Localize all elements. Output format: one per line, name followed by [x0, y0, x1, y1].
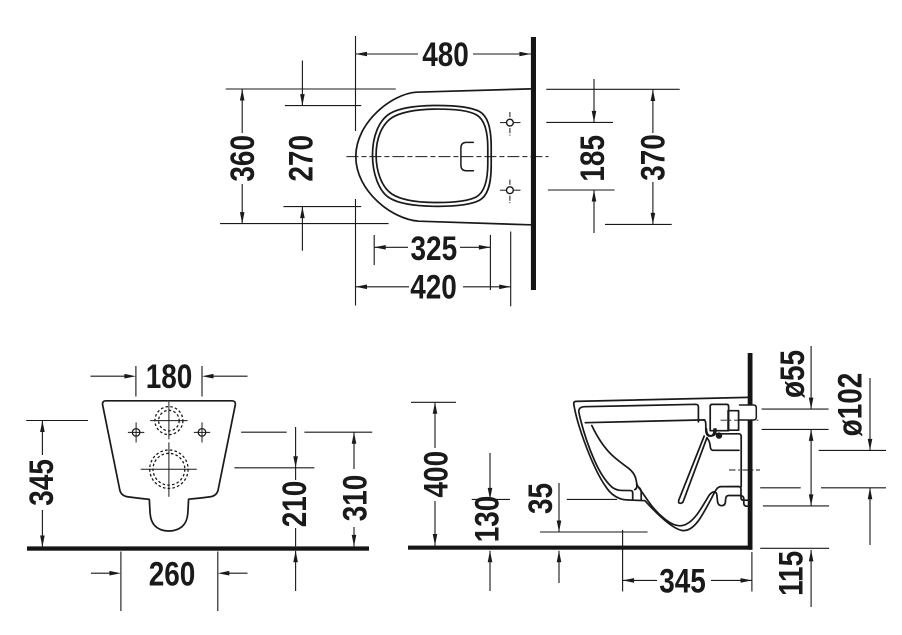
svg-text:185: 185 — [573, 135, 611, 182]
svg-text:260: 260 — [149, 555, 196, 593]
svg-text:ø55: ø55 — [773, 350, 811, 398]
svg-text:345: 345 — [22, 459, 60, 506]
svg-text:35: 35 — [521, 483, 559, 514]
svg-text:480: 480 — [422, 35, 469, 73]
svg-text:115: 115 — [772, 551, 810, 596]
svg-text:ø102: ø102 — [831, 373, 869, 437]
svg-text:420: 420 — [410, 268, 457, 306]
svg-text:130: 130 — [468, 496, 506, 543]
svg-text:360: 360 — [223, 135, 261, 182]
svg-text:325: 325 — [410, 229, 457, 267]
svg-text:345: 345 — [659, 562, 706, 600]
svg-text:270: 270 — [282, 135, 320, 182]
svg-text:310: 310 — [336, 475, 374, 522]
svg-text:400: 400 — [417, 451, 455, 498]
svg-text:210: 210 — [275, 481, 313, 528]
svg-text:370: 370 — [634, 134, 672, 181]
svg-text:180: 180 — [146, 357, 193, 395]
